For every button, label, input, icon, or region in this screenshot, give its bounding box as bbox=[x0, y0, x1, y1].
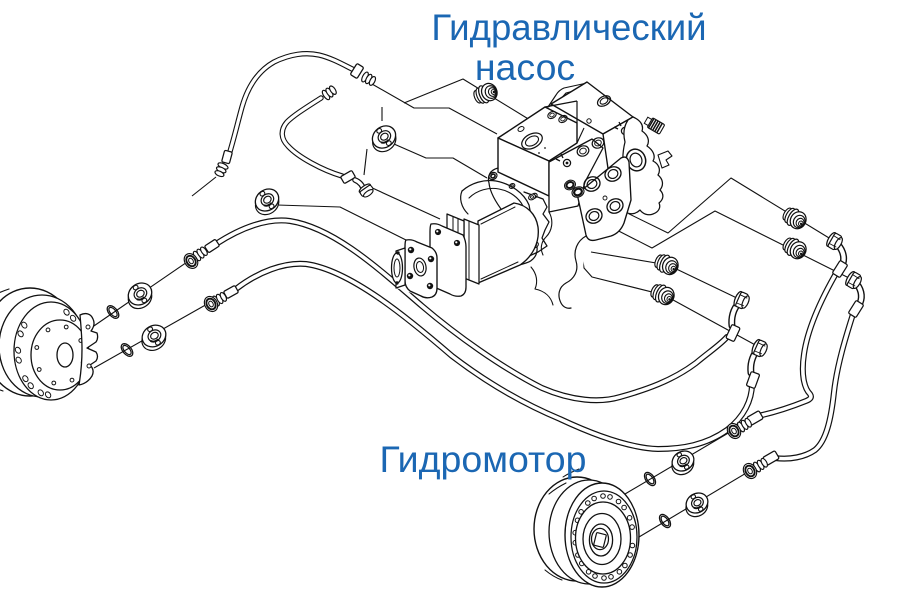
svg-text:Гидромотор: Гидромотор bbox=[379, 438, 586, 480]
svg-text:насос: насос bbox=[475, 46, 575, 88]
svg-text:Гидравлический: Гидравлический bbox=[431, 7, 706, 48]
